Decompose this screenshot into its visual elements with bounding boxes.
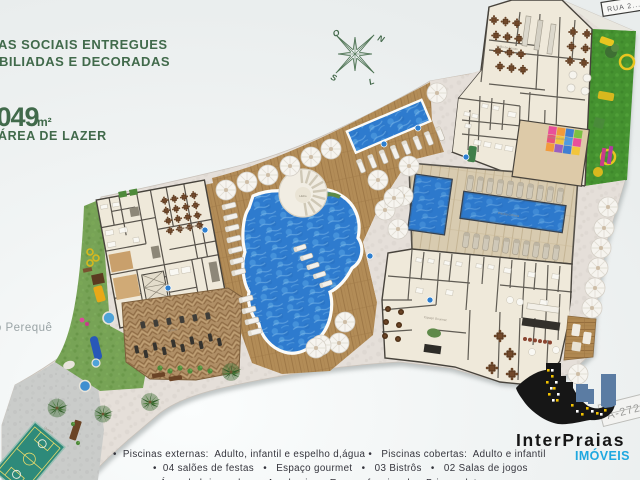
svg-text:ÁREAS SOCIAIS ENTREGUES: ÁREAS SOCIAIS ENTREGUES xyxy=(0,37,168,52)
svg-text:ÁREA DE LAZER: ÁREA DE LAZER xyxy=(0,128,107,143)
svg-text:IMÓVEIS: IMÓVEIS xyxy=(575,448,630,463)
svg-text:5.049: 5.049 xyxy=(0,102,40,132)
svg-text:Hidro: Hidro xyxy=(299,194,307,198)
svg-text:• Piscinas externas: Adulto,: • Piscinas externas: Adulto, infantil e … xyxy=(113,449,546,460)
svg-text:MOBILIADAS E DECORADAS: MOBILIADAS E DECORADAS xyxy=(0,54,170,69)
svg-text:• 04 salões de festas • E: • 04 salões de festas • Espaço gourmet •… xyxy=(153,463,528,474)
svg-text:InterPraias: InterPraias xyxy=(516,430,625,450)
svg-text:m²: m² xyxy=(37,115,52,129)
svg-text:Rio Perequê: Rio Perequê xyxy=(0,322,52,334)
